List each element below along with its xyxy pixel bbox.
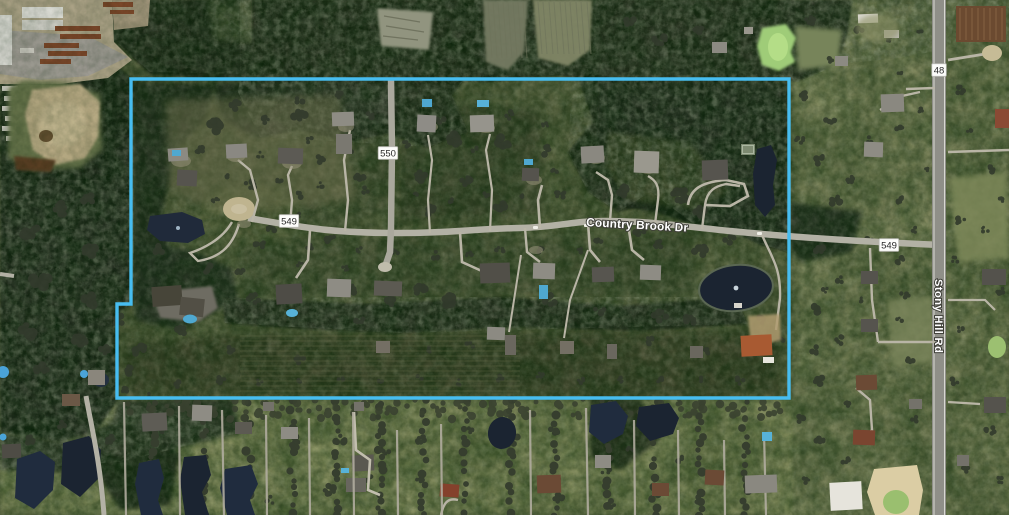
svg-text:550: 550 [380, 148, 396, 159]
svg-text:Stony Hill Rd: Stony Hill Rd [932, 279, 944, 353]
svg-text:549: 549 [881, 240, 897, 251]
svg-text:48: 48 [934, 65, 945, 76]
svg-text:549: 549 [281, 216, 297, 227]
